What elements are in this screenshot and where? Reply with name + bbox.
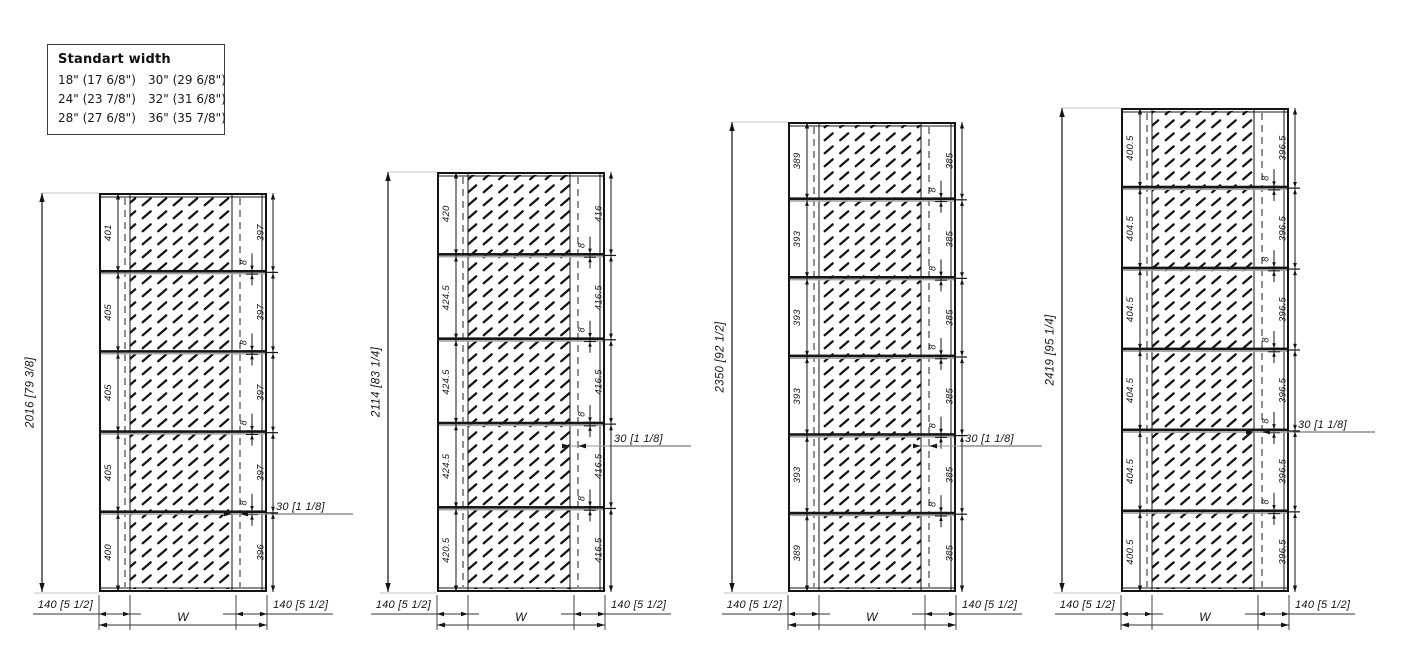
dim-arrow bbox=[609, 256, 613, 262]
stile-width-label-right: 140 [5 1/2] bbox=[962, 599, 1018, 611]
dim-arrow bbox=[588, 333, 592, 338]
section-height-label-right: 416 bbox=[594, 205, 605, 222]
dim-arrow bbox=[437, 612, 444, 616]
dim-arrow bbox=[939, 350, 943, 355]
dim-arrow bbox=[1272, 343, 1276, 348]
section-height-label-left: 424.5 bbox=[441, 369, 452, 395]
dim-arrow bbox=[960, 351, 964, 357]
dim-arrow bbox=[271, 586, 275, 593]
gap-label: 8 bbox=[577, 327, 587, 332]
dim-arrow bbox=[788, 612, 795, 616]
rail-line bbox=[1123, 429, 1287, 432]
section-height-label-left: 400 bbox=[103, 544, 114, 561]
dim-arrow bbox=[588, 342, 592, 347]
section-height-label-left: 393 bbox=[792, 309, 803, 326]
rail-line bbox=[439, 422, 603, 425]
dim-arrow bbox=[1293, 351, 1297, 357]
section-height-label-right: 397 bbox=[256, 464, 267, 481]
section-height-label-left: 405 bbox=[103, 384, 114, 401]
dim-arrow bbox=[588, 257, 592, 262]
dim-arrow bbox=[250, 515, 254, 520]
dim-arrow bbox=[1272, 181, 1276, 186]
section-height-label-right: 385 bbox=[945, 152, 956, 169]
section-height-label-left: 404.5 bbox=[1125, 296, 1136, 322]
legend-entry: 18" (17 6/8") bbox=[58, 71, 140, 90]
section-height-label-left: 405 bbox=[103, 464, 114, 481]
glass-hatch-area bbox=[468, 175, 570, 589]
dim-arrow bbox=[597, 623, 605, 628]
dim-arrow bbox=[960, 122, 964, 129]
section-height-label-right: 416.5 bbox=[594, 369, 605, 395]
rail-offset-note: 30 [1 1/8] bbox=[1298, 419, 1348, 431]
legend-entry: 28" (27 6/8") bbox=[58, 109, 140, 128]
legend-entry: 24" (23 7/8") bbox=[58, 90, 140, 109]
rail-offset-note: 30 [1 1/8] bbox=[965, 433, 1015, 445]
stile-width-label-left: 140 [5 1/2] bbox=[38, 599, 94, 611]
dim-arrow bbox=[1272, 514, 1276, 519]
rail-shadow bbox=[790, 357, 954, 359]
dim-arrow bbox=[948, 623, 956, 628]
dim-arrow bbox=[1272, 262, 1276, 267]
overall-height-label: 2016 [79 3/8] bbox=[25, 356, 37, 429]
dim-arrow bbox=[925, 612, 932, 616]
dim-arrow bbox=[1059, 583, 1064, 592]
total-width-label: W bbox=[866, 610, 879, 624]
dim-arrow bbox=[250, 506, 254, 511]
gap-label: 8 bbox=[1261, 418, 1271, 423]
gap-label: 8 bbox=[928, 187, 938, 192]
section-height-label-left: 389 bbox=[792, 152, 803, 169]
dim-arrow bbox=[1293, 512, 1297, 518]
dim-arrow bbox=[1293, 270, 1297, 276]
dim-arrow bbox=[1293, 182, 1297, 188]
dim-arrow bbox=[960, 272, 964, 278]
dim-arrow bbox=[939, 507, 943, 512]
section-height-label-right: 385 bbox=[945, 466, 956, 483]
section-height-label-left: 424.5 bbox=[441, 285, 452, 311]
dim-arrow bbox=[437, 623, 445, 628]
dim-arrow bbox=[1258, 612, 1265, 616]
dim-arrow bbox=[960, 508, 964, 513]
dim-arrow bbox=[960, 358, 964, 364]
dim-arrow bbox=[250, 346, 254, 351]
section-height-label-right: 396.5 bbox=[1278, 135, 1289, 161]
section-height-label-right: 416.5 bbox=[594, 453, 605, 479]
gap-label: 8 bbox=[1261, 499, 1271, 504]
dim-arrow bbox=[939, 193, 943, 198]
dim-arrow bbox=[939, 359, 943, 364]
section-height-label-left: 404.5 bbox=[1125, 216, 1136, 242]
dim-arrow bbox=[960, 194, 964, 200]
rail-shadow bbox=[1123, 269, 1287, 271]
dim-arrow bbox=[123, 612, 130, 616]
dim-arrow bbox=[960, 436, 964, 442]
dim-arrow bbox=[1059, 108, 1064, 117]
section-height-label-left: 420 bbox=[441, 205, 452, 222]
rail-shadow bbox=[790, 200, 954, 202]
rail-line bbox=[1123, 186, 1287, 189]
dim-arrow bbox=[609, 334, 613, 340]
section-height-label-right: 416.5 bbox=[594, 285, 605, 311]
section-height-label-right: 396.5 bbox=[1278, 216, 1289, 242]
section-height-label-left: 405 bbox=[103, 304, 114, 321]
rail-shadow bbox=[1123, 512, 1287, 514]
dim-arrow bbox=[812, 612, 819, 616]
dim-arrow bbox=[1272, 424, 1276, 429]
legend-entries: 18" (17 6/8") 30" (29 6/8") 24" (23 7/8"… bbox=[58, 71, 214, 128]
rail-shadow bbox=[790, 279, 954, 281]
dim-arrow bbox=[609, 172, 613, 179]
dim-arrow bbox=[1293, 586, 1297, 593]
legend-entry: 32" (31 6/8") bbox=[148, 90, 226, 109]
dim-arrow bbox=[1272, 352, 1276, 357]
rail-line bbox=[101, 270, 265, 273]
panel-drawing-4: 400.5404.5404.5404.5404.5400.5396.5396.5… bbox=[1045, 108, 1376, 630]
gap-label: 8 bbox=[577, 243, 587, 248]
dim-arrow bbox=[1121, 612, 1128, 616]
rail-line bbox=[101, 430, 265, 433]
gap-label: 8 bbox=[1261, 337, 1271, 342]
dim-arrow bbox=[578, 444, 586, 449]
section-height-label-right: 396.5 bbox=[1278, 296, 1289, 322]
dim-arrow bbox=[271, 427, 275, 433]
dim-arrow bbox=[1145, 612, 1152, 616]
dim-arrow bbox=[609, 509, 613, 515]
dim-arrow bbox=[1121, 623, 1129, 628]
section-height-label-left: 400.5 bbox=[1125, 539, 1136, 565]
dim-arrow bbox=[259, 623, 267, 628]
rail-line bbox=[1123, 348, 1287, 351]
dim-arrow bbox=[729, 122, 734, 131]
section-height-label-left: 424.5 bbox=[441, 453, 452, 479]
dim-arrow bbox=[250, 274, 254, 279]
dim-arrow bbox=[1293, 506, 1297, 512]
section-height-label-left: 404.5 bbox=[1125, 377, 1136, 403]
panel-drawing-2: 420424.5424.5424.5420.5416416.5416.5416.… bbox=[371, 172, 692, 630]
dim-arrow bbox=[250, 266, 254, 271]
gap-label: 8 bbox=[928, 266, 938, 271]
gap-label: 8 bbox=[239, 340, 249, 345]
dim-arrow bbox=[960, 430, 964, 436]
dim-arrow bbox=[1272, 433, 1276, 438]
dim-arrow bbox=[271, 353, 275, 359]
rail-line bbox=[439, 253, 603, 256]
dim-arrow bbox=[939, 437, 943, 442]
dim-arrow bbox=[99, 623, 107, 628]
total-width-label: W bbox=[177, 610, 190, 624]
gap-label: 8 bbox=[928, 423, 938, 428]
section-height-label-right: 396.5 bbox=[1278, 458, 1289, 484]
dim-arrow bbox=[1293, 108, 1297, 115]
dim-arrow bbox=[574, 612, 581, 616]
dim-arrow bbox=[1293, 425, 1297, 431]
section-height-label-right: 396.5 bbox=[1278, 539, 1289, 565]
dim-arrow bbox=[271, 193, 275, 200]
dim-arrow bbox=[609, 249, 613, 255]
gap-label: 8 bbox=[1261, 175, 1271, 180]
rail-shadow bbox=[101, 353, 265, 355]
gap-label: 8 bbox=[577, 411, 587, 416]
standard-width-legend: Standart width 18" (17 6/8") 30" (29 6/8… bbox=[47, 44, 225, 135]
dim-arrow bbox=[939, 429, 943, 434]
dim-arrow bbox=[250, 426, 254, 431]
dim-arrow bbox=[39, 583, 44, 592]
section-height-label-right: 385 bbox=[945, 309, 956, 326]
dim-arrow bbox=[250, 434, 254, 439]
stile-width-label-right: 140 [5 1/2] bbox=[273, 599, 329, 611]
dim-arrow bbox=[236, 612, 243, 616]
dim-arrow bbox=[939, 272, 943, 277]
stile-width-label-right: 140 [5 1/2] bbox=[611, 599, 667, 611]
dim-arrow bbox=[271, 346, 275, 352]
dim-arrow bbox=[461, 612, 468, 616]
section-height-label-left: 400.5 bbox=[1125, 135, 1136, 161]
dim-arrow bbox=[588, 426, 592, 431]
dim-arrow bbox=[788, 623, 796, 628]
dim-arrow bbox=[99, 612, 106, 616]
section-height-label-right: 397 bbox=[256, 384, 267, 401]
dim-arrow bbox=[1293, 344, 1297, 350]
dim-arrow bbox=[271, 266, 275, 272]
rail-shadow bbox=[1123, 188, 1287, 190]
dim-arrow bbox=[609, 418, 613, 424]
gap-label: 8 bbox=[239, 500, 249, 505]
section-height-label-right: 396 bbox=[256, 544, 267, 561]
section-height-label-left: 393 bbox=[792, 388, 803, 405]
overall-height-label: 2114 [83 1/4] bbox=[371, 346, 383, 418]
section-height-label-left: 389 bbox=[792, 544, 803, 561]
rail-line bbox=[790, 355, 954, 358]
dim-arrow bbox=[949, 612, 956, 616]
dim-arrow bbox=[385, 583, 390, 592]
section-height-label-right: 396.5 bbox=[1278, 377, 1289, 403]
dim-arrow bbox=[939, 202, 943, 207]
rail-shadow bbox=[790, 436, 954, 438]
dim-arrow bbox=[588, 502, 592, 507]
rail-line bbox=[101, 510, 265, 513]
rail-offset-note: 30 [1 1/8] bbox=[614, 433, 664, 445]
dim-arrow bbox=[929, 444, 937, 449]
panel-drawing-3: 3893933933933933893853853853853853858888… bbox=[715, 122, 1043, 630]
dim-arrow bbox=[960, 279, 964, 285]
legend-entry: 36" (35 7/8") bbox=[148, 109, 226, 128]
stile-width-label-right: 140 [5 1/2] bbox=[1295, 599, 1351, 611]
rail-offset-note: 30 [1 1/8] bbox=[276, 501, 326, 513]
gap-label: 8 bbox=[239, 260, 249, 265]
rail-line bbox=[790, 197, 954, 200]
section-height-label-right: 385 bbox=[945, 230, 956, 247]
rail-shadow bbox=[439, 256, 603, 258]
dim-arrow bbox=[939, 516, 943, 521]
rail-line bbox=[790, 276, 954, 279]
gap-label: 8 bbox=[1261, 256, 1271, 261]
rail-line bbox=[790, 433, 954, 436]
rail-line bbox=[439, 506, 603, 509]
dim-arrow bbox=[1272, 271, 1276, 276]
section-height-label-right: 416.5 bbox=[594, 537, 605, 563]
dim-arrow bbox=[271, 507, 275, 513]
section-height-label-left: 404.5 bbox=[1125, 458, 1136, 484]
dim-arrow bbox=[598, 612, 605, 616]
glass-hatch-area bbox=[130, 196, 232, 589]
panel-drawing-1: 401405405405400397397397397396888830 [1 … bbox=[25, 193, 354, 630]
dim-arrow bbox=[271, 433, 275, 439]
dim-arrow bbox=[39, 193, 44, 202]
rail-shadow bbox=[439, 509, 603, 511]
rail-shadow bbox=[439, 424, 603, 426]
rail-line bbox=[1123, 509, 1287, 512]
gap-label: 8 bbox=[928, 344, 938, 349]
dim-arrow bbox=[260, 612, 267, 616]
section-height-label-right: 397 bbox=[256, 304, 267, 321]
section-height-label-left: 401 bbox=[103, 224, 114, 241]
dim-arrow bbox=[1293, 189, 1297, 195]
dim-arrow bbox=[385, 172, 390, 181]
dim-arrow bbox=[960, 200, 964, 206]
dim-arrow bbox=[960, 586, 964, 593]
rail-line bbox=[790, 512, 954, 515]
gap-label: 8 bbox=[577, 496, 587, 501]
dim-arrow bbox=[1272, 190, 1276, 195]
stile-width-label-left: 140 [5 1/2] bbox=[376, 599, 432, 611]
total-width-label: W bbox=[515, 610, 528, 624]
dim-arrow bbox=[588, 510, 592, 515]
stile-width-label-left: 140 [5 1/2] bbox=[727, 599, 783, 611]
section-height-label-left: 393 bbox=[792, 230, 803, 247]
dim-arrow bbox=[960, 515, 964, 521]
dim-arrow bbox=[1293, 263, 1297, 269]
section-height-label-right: 385 bbox=[945, 388, 956, 405]
legend-entry: 30" (29 6/8") bbox=[148, 71, 226, 90]
dim-arrow bbox=[609, 502, 613, 508]
dim-arrow bbox=[271, 273, 275, 279]
dim-arrow bbox=[609, 425, 613, 431]
dim-arrow bbox=[1281, 623, 1289, 628]
dim-arrow bbox=[588, 417, 592, 422]
rail-shadow bbox=[101, 273, 265, 275]
stile-width-label-left: 140 [5 1/2] bbox=[1060, 599, 1116, 611]
section-height-label-left: 420.5 bbox=[441, 537, 452, 563]
rail-line bbox=[1123, 267, 1287, 270]
overall-height-label: 2350 [92 1/2] bbox=[715, 321, 727, 394]
dim-arrow bbox=[1272, 505, 1276, 510]
rail-shadow bbox=[439, 340, 603, 342]
dim-arrow bbox=[588, 249, 592, 254]
total-width-label: W bbox=[1199, 610, 1212, 624]
rail-shadow bbox=[101, 433, 265, 435]
dim-arrow bbox=[939, 280, 943, 285]
rail-line bbox=[439, 337, 603, 340]
rail-shadow bbox=[790, 515, 954, 517]
dim-arrow bbox=[609, 586, 613, 593]
legend-title: Standart width bbox=[58, 52, 214, 67]
section-height-label-left: 393 bbox=[792, 466, 803, 483]
overall-height-label: 2419 [95 1/4] bbox=[1045, 314, 1057, 387]
gap-label: 8 bbox=[928, 502, 938, 507]
dim-arrow bbox=[1282, 612, 1289, 616]
gap-label: 8 bbox=[239, 420, 249, 425]
dim-arrow bbox=[250, 354, 254, 359]
dim-arrow bbox=[609, 340, 613, 346]
section-height-label-right: 385 bbox=[945, 544, 956, 561]
dim-arrow bbox=[729, 583, 734, 592]
rail-shadow bbox=[1123, 350, 1287, 352]
section-height-label-right: 397 bbox=[256, 224, 267, 241]
rail-line bbox=[101, 350, 265, 353]
